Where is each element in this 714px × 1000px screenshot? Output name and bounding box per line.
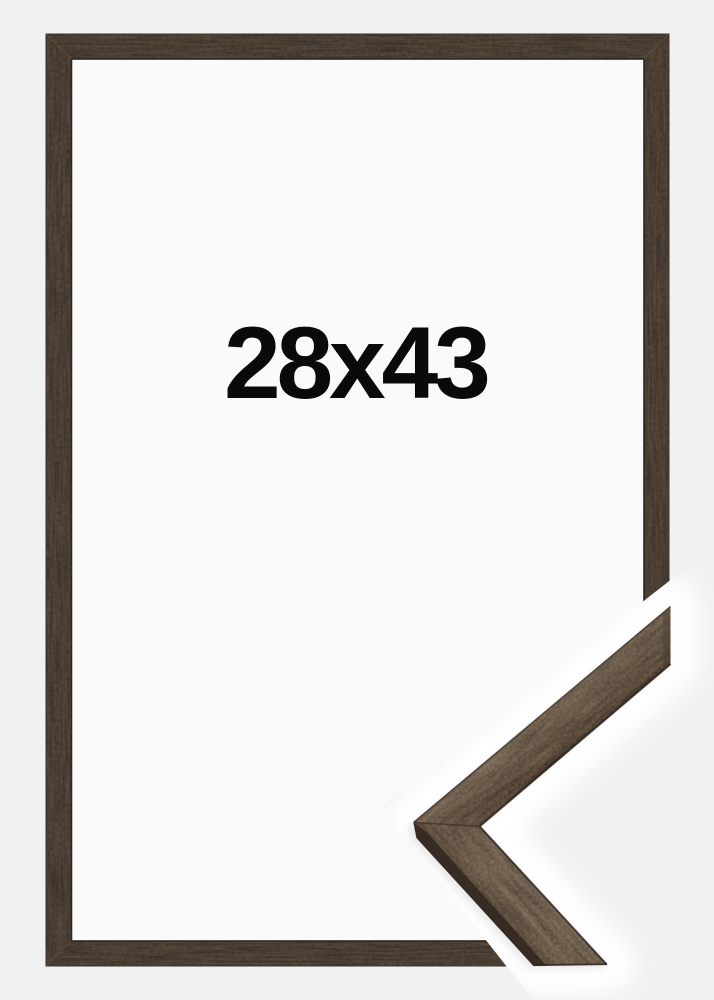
svg-text:28x43: 28x43 — [224, 306, 488, 420]
